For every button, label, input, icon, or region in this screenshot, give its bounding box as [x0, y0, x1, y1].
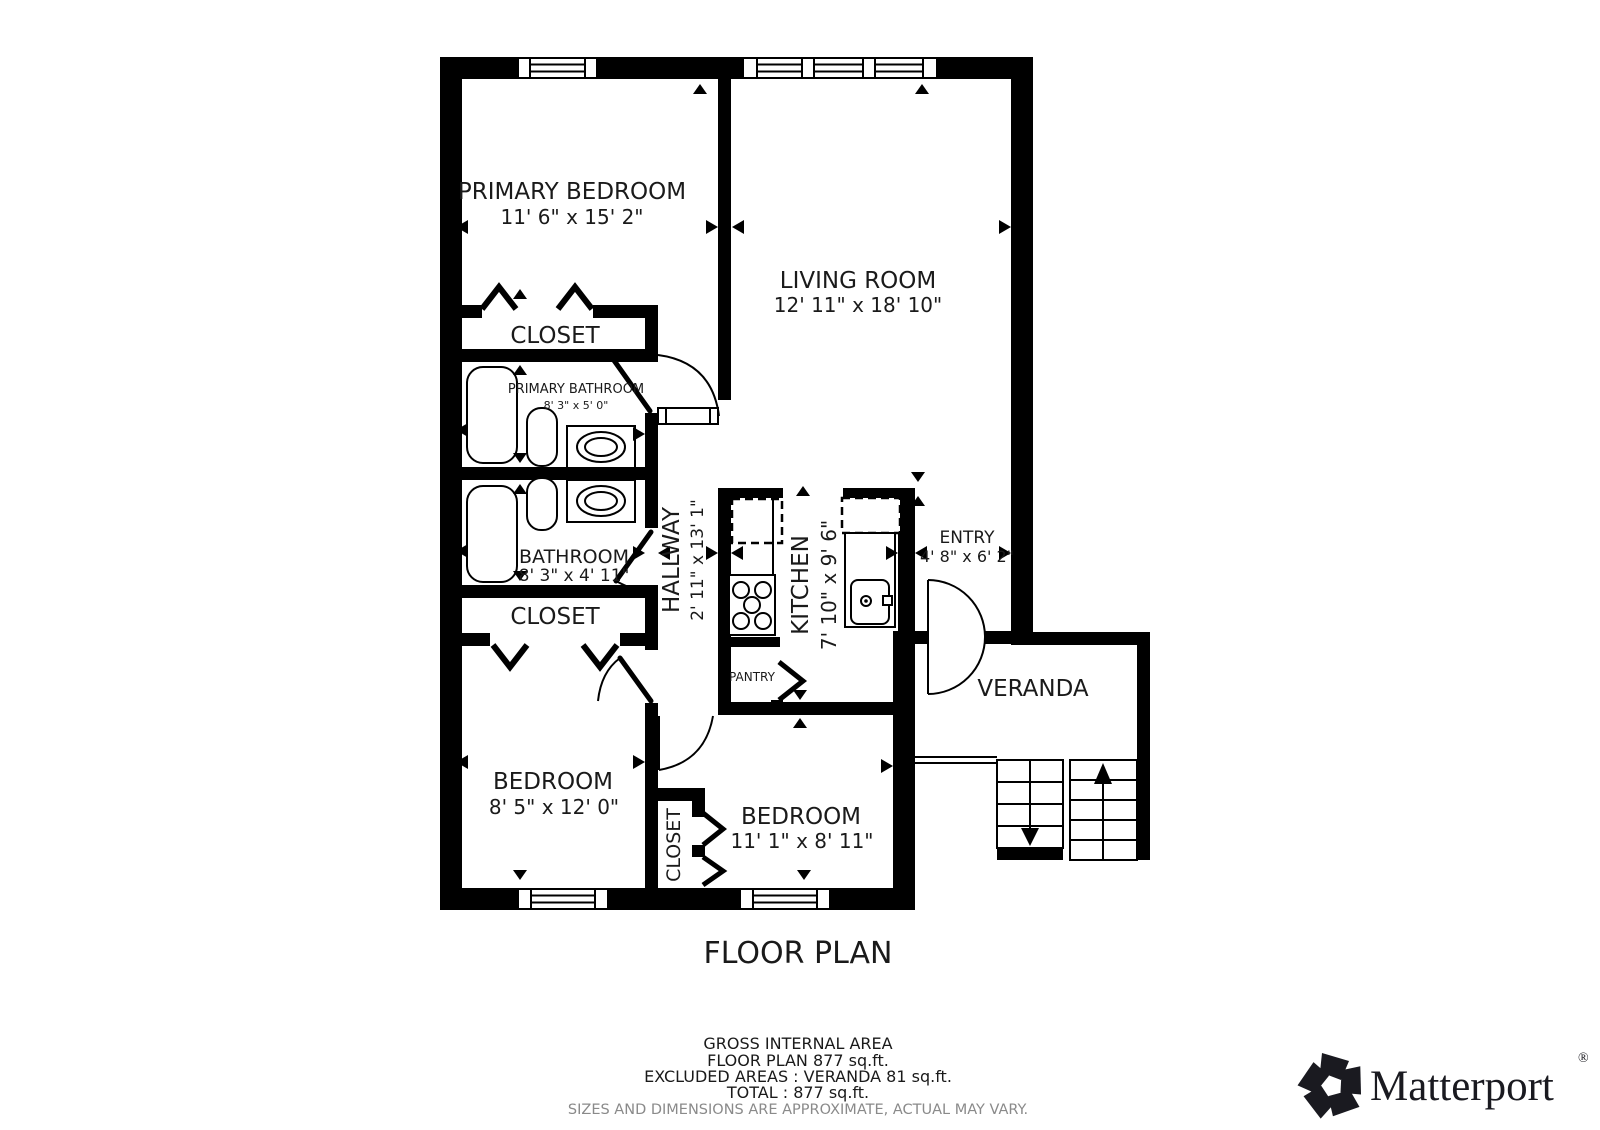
- sink-icon: [567, 480, 635, 522]
- toilet-icon: [527, 478, 557, 530]
- tick-bed2-right: [881, 759, 893, 773]
- wall-veranda-top: [1011, 632, 1150, 645]
- bedroom-left-door: [598, 658, 651, 701]
- tick-bed2-top-down: [793, 690, 807, 700]
- bedroom-right-dims: 11' 1" x 8' 11": [730, 829, 873, 853]
- tick-up-1: [693, 84, 707, 94]
- hallway-label: HALLWAY: [659, 506, 685, 613]
- entry-door-stub-right: [985, 631, 1011, 644]
- bedroom-left-dims: 8' 5" x 12' 0": [489, 795, 619, 819]
- bathtub-icon: [467, 486, 517, 582]
- pantry-stub: [771, 700, 783, 712]
- footer-total-area: TOTAL : 877 sq.ft.: [726, 1083, 869, 1102]
- tick-bottom-2: [797, 870, 811, 880]
- closet2-bifold-door-2: [583, 645, 617, 667]
- tick-left-2: [732, 220, 744, 234]
- closet-between-label: CLOSET: [663, 808, 685, 882]
- closet-top-label: CLOSET: [510, 323, 600, 349]
- primary-toilet-icon: [527, 408, 557, 466]
- primary-bedroom-label: PRIMARY BEDROOM: [458, 179, 686, 205]
- bathroom-dims: 8' 3" x 4' 11": [519, 566, 630, 586]
- wall-bottom: [440, 888, 915, 910]
- tick-pbath-bottom: [513, 453, 527, 463]
- closet-bottom-wall: [440, 349, 658, 362]
- stair-flight-down: [997, 760, 1063, 848]
- stove-icon: [729, 575, 775, 635]
- window-bedroom-left: [518, 889, 608, 909]
- tick-bottom-1: [513, 870, 527, 880]
- kitchen-dims: 7' 10" x 9' 6": [817, 520, 841, 650]
- kitchen-bottom-wall: [718, 702, 915, 715]
- primary-bathroom-dims: 8' 3" x 5' 0": [544, 399, 609, 412]
- closet-bifold-door-2: [558, 287, 592, 309]
- dishwasher-icon: [842, 498, 900, 533]
- hallway-threshold: [658, 408, 718, 424]
- registered-trademark-icon: ®: [1578, 1051, 1589, 1066]
- pantry-label: PANTRY: [729, 670, 776, 684]
- closet2-bifold-door-1: [493, 645, 527, 667]
- entry-label: ENTRY: [940, 528, 996, 548]
- matterport-wordmark: Matterport: [1370, 1063, 1554, 1110]
- closet-top-wall-left: [440, 305, 482, 318]
- bedroom-right-label: BEDROOM: [741, 804, 861, 830]
- tick-bed2-top-up: [793, 718, 807, 728]
- matterport-logo: Matterport ®: [1297, 1051, 1589, 1123]
- page-title: FLOOR PLAN: [704, 936, 893, 971]
- window-living-room: [743, 58, 937, 78]
- tick-up-2: [915, 84, 929, 94]
- tick-right-1: [706, 220, 718, 234]
- window-bedroom-right: [740, 889, 830, 909]
- wall-veranda-right: [1137, 632, 1150, 860]
- tick-right-2: [999, 220, 1011, 234]
- entry-dims: 4' 8" x 6' 2": [920, 547, 1014, 566]
- living-room-dims: 12' 11" x 18' 10": [774, 293, 942, 317]
- closet3-bifold-door-1: [703, 813, 723, 845]
- hall-wall-seg1: [645, 305, 658, 357]
- hall-wall-seg2: [645, 413, 658, 528]
- staircase: [915, 757, 1137, 860]
- tick-closet-top: [513, 289, 527, 299]
- stairs-up-arrow: [1094, 763, 1112, 784]
- floor-plan-page: PRIMARY BEDROOM 11' 6" x 15' 2" LIVING R…: [0, 0, 1600, 1130]
- living-room-label: LIVING ROOM: [780, 268, 937, 294]
- kitchen-sink-icon: [851, 580, 892, 624]
- hallway-dims: 2' 11" x 13' 1": [688, 499, 708, 621]
- primary-bedroom-dims: 11' 6" x 15' 2": [500, 205, 643, 229]
- closet-bifold-door-1: [482, 287, 516, 309]
- primary-sink-icon: [567, 426, 635, 468]
- hall-wall-seg3: [645, 585, 658, 650]
- tick-pbath-top: [513, 365, 527, 375]
- tick-right-pbath: [633, 427, 645, 441]
- bedroom-living-divider: [718, 57, 731, 400]
- kitchen-top-wall-left: [718, 488, 783, 498]
- tick-bed1-right: [633, 755, 645, 769]
- stair-bottom-bar: [997, 848, 1063, 860]
- bathroom-label: BATHROOM: [519, 546, 629, 568]
- pantry-top-wall: [718, 637, 780, 647]
- wall-living-right: [1011, 57, 1033, 645]
- tick-kitchen-left: [731, 546, 743, 560]
- window-primary-bedroom: [518, 58, 597, 78]
- stairs-down-arrow: [1021, 828, 1039, 846]
- closet2-bottom-wall-left: [440, 633, 490, 646]
- bedroom-left-label: BEDROOM: [493, 769, 613, 795]
- bedroom-right-door: [659, 716, 713, 770]
- titles: FLOOR PLAN GROSS INTERNAL AREA FLOOR PLA…: [568, 936, 1028, 1118]
- closet3-right-stub2: [692, 845, 705, 857]
- closet3-bifold-door-2: [703, 857, 723, 885]
- closet3-top-wall: [645, 788, 705, 801]
- refrigerator-icon: [732, 499, 782, 543]
- bathroom-bottom-wall: [440, 585, 658, 598]
- footer-disclaimer: SIZES AND DIMENSIONS ARE APPROXIMATE, AC…: [568, 1102, 1028, 1118]
- tick-entry-top-down: [911, 472, 925, 482]
- stair-flight-up: [1070, 760, 1137, 860]
- kitchen-label: KITCHEN: [788, 535, 814, 635]
- tick-kitchen-top: [796, 486, 810, 496]
- primary-bathroom-label: PRIMARY BATHROOM: [508, 382, 644, 397]
- kitchen-fixtures: [729, 498, 900, 635]
- closet-mid-label: CLOSET: [510, 604, 600, 630]
- tick-bath-top: [513, 484, 527, 494]
- veranda-label: VERANDA: [977, 676, 1089, 702]
- floor-plan-drawing: PRIMARY BEDROOM 11' 6" x 15' 2" LIVING R…: [0, 0, 1600, 1130]
- matterport-icon: [1297, 1053, 1369, 1123]
